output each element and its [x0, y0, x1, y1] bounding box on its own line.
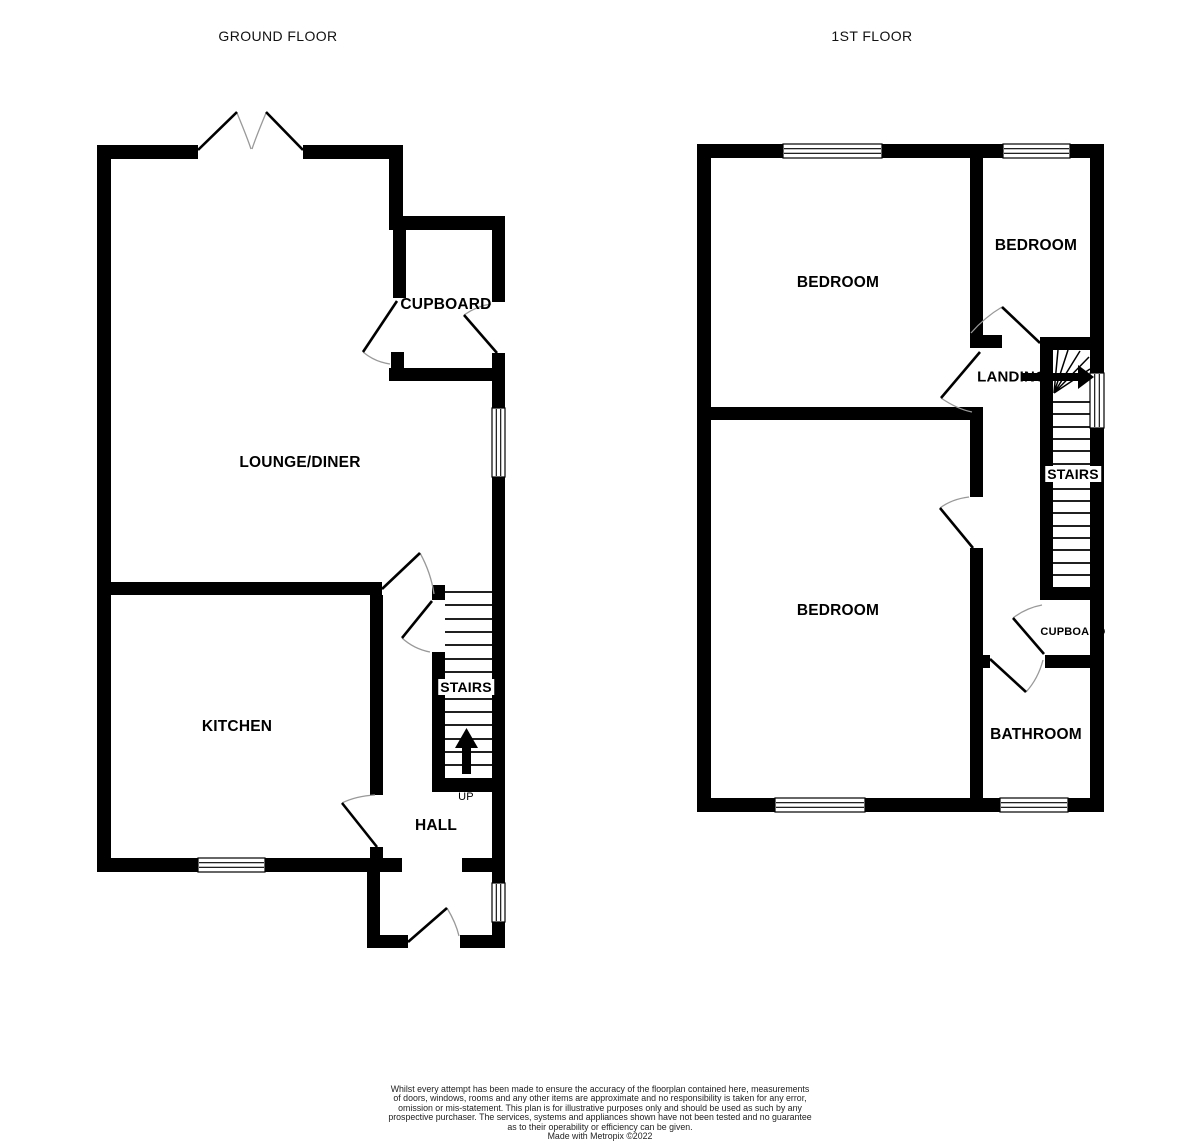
gf-wall-kitchen-right — [370, 595, 383, 795]
gf-cupboard-wall-right — [492, 216, 505, 302]
floorplan-canvas: GROUND FLOOR 1ST FLOOR LOUNGE/DINER CUPB… — [0, 0, 1200, 1147]
gf-wall-bottom-a — [97, 858, 198, 872]
ff-wall-bottom-b — [865, 798, 1000, 812]
gf-up-arrow — [455, 728, 478, 774]
gf-wall-kitchen-divider — [97, 582, 382, 595]
gf-wall-top-a — [97, 145, 198, 159]
ff-wall-bottom-c — [1068, 798, 1103, 812]
ff-mid-divider — [697, 407, 983, 420]
room-label-hall: HALL — [415, 817, 457, 835]
ff-landing-wall-a — [970, 420, 983, 497]
ff-landing-wall-b — [970, 548, 983, 655]
ff-cupboard-wall-bottom — [1045, 655, 1103, 668]
label-up: UP — [458, 791, 474, 803]
ff-bedroom-divider — [970, 158, 983, 337]
room-label-landing: LANDING — [977, 369, 1047, 386]
ff-wall-top-a — [697, 144, 783, 158]
room-label-stairs-ff: STAIRS — [1045, 466, 1101, 482]
ff-cupboard-door-arc — [1013, 605, 1042, 618]
gf-cupboard-wall-right-stub — [492, 353, 505, 383]
gf-kitchen-door-leaf — [342, 803, 377, 847]
ff-stairs-wall-top — [1040, 337, 1103, 350]
room-label-stairs-gf: STAIRS — [438, 679, 494, 695]
ff-stairs-treads — [1053, 402, 1090, 575]
floorplan-drawing — [0, 0, 1200, 1147]
ff-wall-bottom-a — [697, 798, 775, 812]
gf-wall-top-b — [303, 145, 403, 159]
gf-porch-wall-bottom-a — [367, 935, 408, 948]
gf-door-arcs — [237, 113, 491, 936]
ff-wall-top-b — [882, 144, 1003, 158]
ff-stairs-wall-bottom — [1040, 587, 1103, 600]
gf-wall-right-upper — [389, 145, 403, 224]
ff-wall-left — [697, 144, 711, 812]
gf-window-hall-right — [492, 883, 505, 922]
ff-window-bathroom-bottom — [1000, 798, 1068, 812]
ff-bathroom-stub — [970, 655, 990, 668]
ff-bedroom-back-door-arc — [940, 497, 969, 508]
gf-entry-door-leaf-left — [198, 112, 237, 150]
gf-wall-right-a — [492, 381, 505, 408]
metropix-credit: Made with Metropix ©2022 — [375, 1132, 825, 1141]
gf-cupboard-wall-left — [393, 230, 406, 298]
gf-lounge-door-arc — [420, 553, 434, 594]
gf-cupboard-door-arc-left — [363, 352, 390, 364]
gf-stairs-door-arc — [402, 638, 430, 652]
gf-window-kitchen-bottom — [198, 858, 265, 872]
gf-lounge-door-leaf — [382, 553, 420, 589]
ff-bathroom-door-arc — [1026, 660, 1043, 692]
gf-entry-door-leaf-right — [266, 112, 303, 150]
gf-stairs-door-leaf — [402, 601, 432, 638]
gf-entry-door-arc-left — [237, 113, 251, 149]
gf-window-lounge-right — [492, 408, 505, 477]
gf-kitchen-door-arc — [342, 795, 375, 803]
ff-bedroom-back-door-leaf — [940, 508, 973, 548]
gf-wall-kitchen-right-stub — [370, 847, 383, 872]
first-floor-title: 1ST FLOOR — [831, 28, 912, 44]
room-label-cupboard-gf: CUPBOARD — [400, 296, 491, 314]
ff-bedroom-divider-stub — [970, 335, 1002, 348]
gf-entry-door-arc-right — [252, 113, 266, 149]
ff-window-bedroom-small-top — [1003, 144, 1070, 158]
ff-cupboard-door-leaf — [1013, 618, 1044, 654]
gf-wall-bottom-c — [462, 858, 505, 872]
ff-window-bedroom-front-top — [783, 144, 882, 158]
gf-stairs-wall-bottom — [432, 778, 505, 792]
gf-cupboard-door-leaf-right — [464, 315, 497, 353]
gf-cupboard-door-leaf-left — [363, 301, 397, 352]
gf-stairs-wall-left — [432, 652, 445, 778]
room-label-bathroom: BATHROOM — [990, 726, 1082, 744]
gf-cupboard-wall-top — [389, 216, 505, 230]
footer-disclaimer: Whilst every attempt has been made to en… — [375, 1085, 825, 1141]
ff-wall-right-lower — [1090, 428, 1104, 812]
room-label-lounge-diner: LOUNGE/DINER — [239, 454, 360, 472]
disclaimer-text: Whilst every attempt has been made to en… — [375, 1085, 825, 1132]
room-label-bedroom-small: BEDROOM — [995, 237, 1077, 255]
room-label-kitchen: KITCHEN — [202, 718, 272, 736]
gf-wall-left — [97, 145, 111, 872]
ff-bathroom-wall-left — [970, 667, 983, 798]
ff-bedroom-front-door-leaf — [941, 352, 980, 398]
ff-window-stairs-right — [1090, 373, 1104, 428]
room-label-cupboard-ff: CUPBOARD — [1040, 626, 1105, 638]
room-label-bedroom-front: BEDROOM — [797, 274, 879, 292]
gf-front-door-arc — [447, 908, 459, 936]
gf-porch-wall-bottom-b — [460, 935, 505, 948]
ff-bathroom-door-leaf — [990, 659, 1026, 692]
gf-cupboard-wall-bottomleft-stub — [391, 352, 404, 381]
gf-wall-right-b — [492, 477, 505, 792]
gf-cupboard-wall-bottom — [389, 368, 492, 381]
gf-front-door-leaf — [408, 908, 447, 942]
room-label-bedroom-back: BEDROOM — [797, 602, 879, 620]
ground-floor-title: GROUND FLOOR — [218, 28, 337, 44]
ff-bedroom-small-door-leaf — [1002, 307, 1040, 343]
ff-window-bedroom-back-bottom — [775, 798, 865, 812]
